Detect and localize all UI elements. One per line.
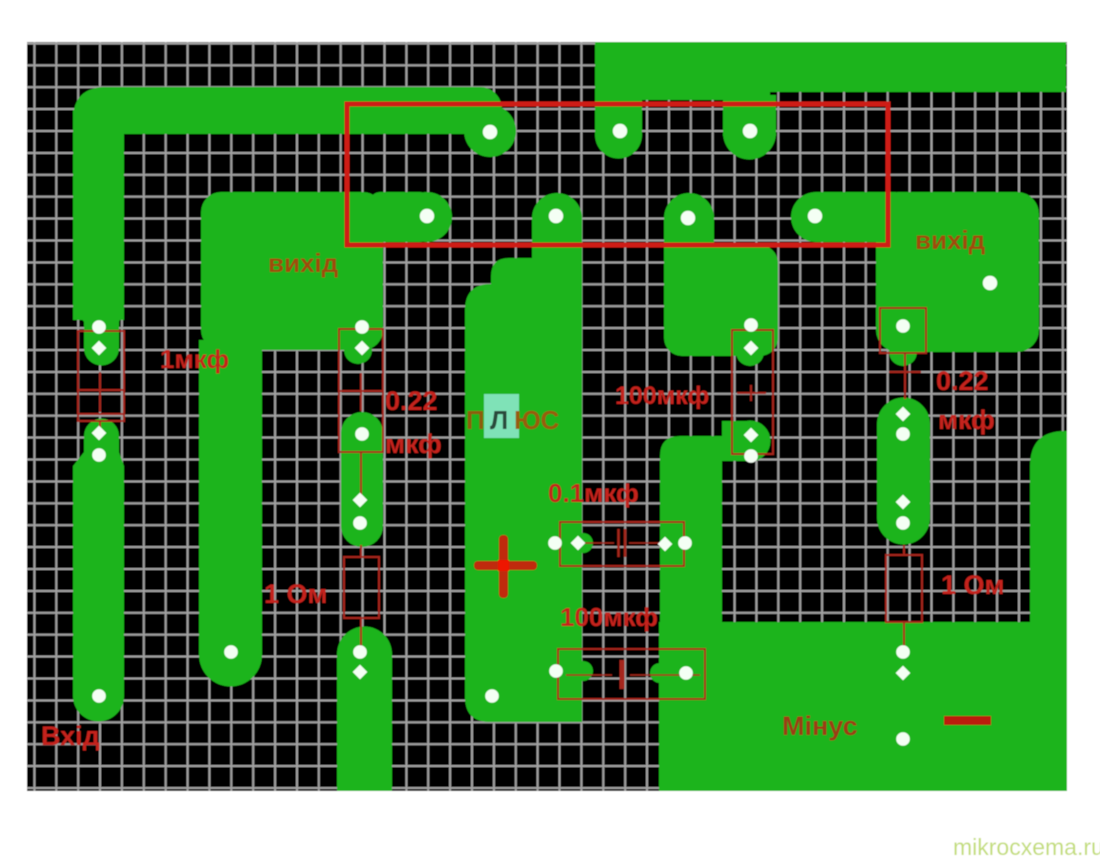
svg-text:mikrocxema.ru: mikrocxema.ru bbox=[953, 834, 1100, 859]
svg-text:1 Ом: 1 Ом bbox=[264, 579, 328, 609]
svg-text:П: П bbox=[466, 405, 485, 435]
svg-text:100мкф: 100мкф bbox=[560, 602, 658, 632]
svg-text:Вхід: Вхід bbox=[41, 721, 100, 751]
svg-text:0.22: 0.22 bbox=[936, 366, 989, 396]
svg-text:мкф: мкф bbox=[938, 405, 995, 435]
svg-text:1мкф: 1мкф bbox=[160, 344, 229, 374]
svg-text:0.22: 0.22 bbox=[385, 386, 438, 416]
svg-text:вихід: вихід bbox=[268, 248, 339, 278]
svg-text:0.1мкф: 0.1мкф bbox=[548, 478, 639, 508]
svg-text:100мкф: 100мкф bbox=[615, 382, 709, 410]
svg-text:1 Ом: 1 Ом bbox=[941, 570, 1005, 600]
svg-text:ЮС: ЮС bbox=[514, 405, 559, 435]
svg-text:Мінус: Мінус bbox=[782, 711, 858, 741]
svg-text:Л: Л bbox=[490, 405, 508, 435]
svg-text:мкф: мкф bbox=[385, 429, 442, 459]
svg-text:вихід: вихід bbox=[915, 225, 986, 255]
